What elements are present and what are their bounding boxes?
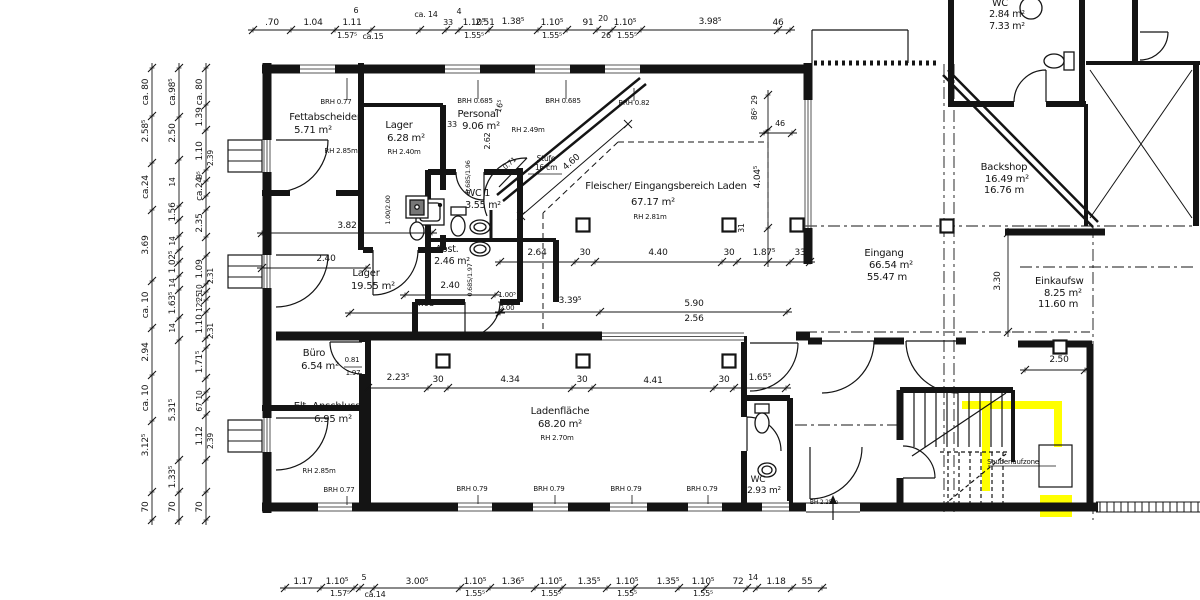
dim-label: 1.10⁵ bbox=[463, 18, 486, 28]
dim-label: 0.685/1.96 bbox=[464, 160, 472, 193]
dim-label: 1.10⁵ bbox=[326, 577, 349, 587]
dim-label: ca.98⁵ bbox=[168, 78, 178, 106]
dim-label: 2.23⁵ bbox=[387, 373, 410, 383]
room-lager-2: Lager bbox=[352, 268, 380, 279]
dim-label: 2.31 bbox=[206, 268, 215, 284]
dim-label: 1.38⁵ bbox=[502, 17, 525, 27]
dim-label: 26 bbox=[601, 31, 611, 40]
dim-label: 1.35⁵ bbox=[657, 577, 680, 587]
dim-label: 1.55⁵ bbox=[617, 31, 637, 40]
dim-label: 1.57⁵ bbox=[330, 589, 350, 598]
dim-label: 2.40 bbox=[316, 254, 336, 264]
dim-label: 4.40 bbox=[648, 248, 668, 258]
dim-label: 1.56 bbox=[168, 202, 178, 222]
dim-label: 0.81 bbox=[345, 356, 360, 364]
dim-label: 2.94 bbox=[141, 342, 151, 362]
dim-label: 2.40 bbox=[440, 281, 460, 291]
dim-label: 7.33 m² bbox=[989, 21, 1025, 32]
dim-label: ca. 14 bbox=[414, 10, 437, 19]
dim-label: 5.31⁵ bbox=[168, 398, 178, 421]
dim-label: ca.14 bbox=[364, 590, 385, 599]
dim-label: 1.10 bbox=[195, 314, 205, 334]
room-eingang: Eingang bbox=[864, 248, 903, 259]
dim-label: 4.34 bbox=[500, 375, 520, 385]
dim-label: BRH 0.685 bbox=[545, 97, 580, 105]
dim-label: 1.10 bbox=[195, 141, 205, 161]
dim-label: 3.00⁵ bbox=[406, 577, 429, 587]
dim-label: 30 bbox=[718, 375, 730, 385]
dim-label: 16⁵ bbox=[494, 99, 506, 114]
dim-label: 91 bbox=[582, 18, 593, 28]
dim-label: 2.00 bbox=[500, 304, 515, 312]
dim-label: ca. 80 bbox=[141, 78, 151, 105]
doors bbox=[276, 32, 1168, 499]
label-sauberlaufzone: Sauberlaufzone bbox=[987, 458, 1039, 466]
dim-label: 1.63⁵ bbox=[168, 291, 178, 314]
dim-label: 1.10⁵ bbox=[541, 18, 564, 28]
dim-label: 1.10⁵ bbox=[692, 577, 715, 587]
dim-label: 2.39 bbox=[206, 150, 215, 166]
dim-label: BRH 0.79 bbox=[456, 485, 487, 493]
room-elt: Elt.-Anschluss bbox=[294, 401, 361, 412]
dim-label: 68.20 m² bbox=[538, 419, 582, 430]
dim-label: 2.31 bbox=[206, 323, 215, 339]
dim-label: 16 cm bbox=[535, 163, 557, 172]
room-wc-klein: WC bbox=[751, 475, 766, 485]
dim-label: 70 bbox=[195, 501, 205, 513]
dim-label: RH 2.81m bbox=[633, 213, 667, 221]
dim-label: 5 bbox=[362, 573, 367, 582]
dim-label: 3.12⁵ bbox=[141, 433, 151, 456]
dim-label: 1.09 bbox=[195, 259, 205, 279]
dim-label: 1.39 bbox=[195, 107, 205, 127]
dim-label: RH 2.85m bbox=[324, 147, 358, 155]
dim-label: 9.06 m² bbox=[462, 121, 500, 132]
room-fleischer: Fleischer/ Eingangsbereich Laden bbox=[585, 181, 747, 192]
dim-label: .70 bbox=[265, 18, 279, 28]
dim-label: 20 bbox=[598, 14, 608, 23]
dim-label: 1.10⁵ bbox=[616, 577, 639, 587]
dim-label: 3.55 m² bbox=[465, 200, 501, 211]
dim-label: 70 bbox=[168, 501, 178, 513]
room-ladenflaeche: Ladenfläche bbox=[531, 406, 590, 417]
dim-label: 30 bbox=[576, 375, 588, 385]
dim-label: 55.47 m bbox=[867, 272, 907, 283]
room-abst: Abst. bbox=[435, 244, 458, 255]
dim-label: ca. 80 bbox=[195, 78, 205, 105]
dim-label: RH 2.40m bbox=[387, 148, 421, 156]
dim-label: 2.46 m² bbox=[434, 256, 470, 267]
dim-label: 5.90 bbox=[684, 299, 704, 309]
dim-label: 2.58⁵ bbox=[141, 119, 151, 142]
dim-label: RH 2.49m bbox=[511, 126, 545, 134]
room-einkaufswagen: Einkaufsw bbox=[1035, 276, 1084, 287]
dim-label: 0.685/1.97 bbox=[466, 263, 474, 296]
dim-label: 6.28 m² bbox=[387, 133, 425, 144]
dim-label: 1.04 bbox=[303, 18, 323, 28]
dim-label: 2.35 bbox=[195, 213, 205, 232]
dim-label: 10 bbox=[195, 390, 204, 400]
dim-label: ca.24 bbox=[141, 175, 151, 199]
dim-label: 1.55⁵ bbox=[464, 31, 484, 40]
dim-label: 1.10⁵ bbox=[540, 577, 563, 587]
floor-plan-canvas: .701.0461.111.57⁵ca.15ca. 142.513341.10⁵… bbox=[0, 0, 1200, 600]
dim-label: 14 bbox=[168, 323, 177, 333]
dim-label: 10 bbox=[195, 284, 204, 294]
dim-label: BRH 0.79 bbox=[610, 485, 641, 493]
dim-label: Stufe bbox=[537, 154, 556, 163]
dim-label: 6.95 m² bbox=[314, 414, 352, 425]
dim-label: 3.98⁵ bbox=[699, 17, 722, 27]
dim-label: 2.62 bbox=[483, 132, 492, 149]
room-personal: Personal bbox=[458, 109, 499, 120]
dim-label: 33 bbox=[447, 120, 457, 129]
dim-label: 67.17 m² bbox=[631, 197, 675, 208]
dim-label: 72 bbox=[732, 577, 743, 587]
dim-label: RH 2.70m bbox=[540, 434, 574, 442]
dim-label: 4.04⁵ bbox=[753, 165, 763, 188]
dim-label: 11.60 m bbox=[1038, 299, 1078, 310]
dim-label: 55 bbox=[801, 577, 812, 587]
dim-label: 1.00⁵ bbox=[498, 291, 516, 299]
dim-label: 3.69 bbox=[141, 235, 151, 255]
floor-plan-svg: .701.0461.111.57⁵ca.15ca. 142.513341.10⁵… bbox=[0, 0, 1200, 600]
dim-label: 14 bbox=[748, 573, 758, 582]
dim-label: 14 bbox=[168, 177, 177, 187]
dim-label: BRH 0.77 bbox=[320, 98, 351, 106]
dim-label: BRH 0.79 bbox=[533, 485, 564, 493]
dim-label: 3.82 bbox=[337, 221, 356, 231]
dim-label: 30 bbox=[432, 375, 444, 385]
dim-label: 1.10⁵ bbox=[464, 577, 487, 587]
dim-label: 2.64 bbox=[527, 248, 547, 258]
dim-label: BRH 0.82 bbox=[618, 99, 649, 107]
dim-label: 1.55⁵ bbox=[541, 589, 561, 598]
dim-label: 1.65⁵ bbox=[749, 373, 772, 383]
dim-label: ca.15 bbox=[362, 32, 383, 41]
dim-label: 4.60 bbox=[561, 152, 582, 172]
dim-label: 1.55⁵ bbox=[693, 589, 713, 598]
dim-label: 5.71 m² bbox=[294, 125, 332, 136]
axis-lines bbox=[795, 64, 1195, 520]
dim-label: 33 bbox=[794, 248, 805, 258]
dim-label: 1.35⁵ bbox=[578, 577, 601, 587]
dim-label: 1.17 bbox=[293, 577, 312, 587]
dim-label: 1.55⁵ bbox=[465, 589, 485, 598]
dim-label: 86⁵ bbox=[750, 108, 759, 120]
room-fettabscheider: Fettabscheider bbox=[289, 112, 362, 123]
dim-label: 3.30 bbox=[993, 271, 1003, 291]
dim-label: 1.18 bbox=[766, 577, 786, 587]
dim-label: 33 bbox=[443, 18, 453, 27]
dim-label: 16.49 m² bbox=[985, 174, 1029, 185]
room-buero: Büro bbox=[303, 348, 325, 359]
dim-label: BRH 0.685 bbox=[457, 97, 492, 105]
dim-label: 29 bbox=[750, 95, 759, 105]
room-backshop: Backshop bbox=[981, 162, 1028, 173]
porch bbox=[812, 30, 936, 63]
dim-label: 3.39⁵ bbox=[559, 296, 582, 306]
dim-label: 31 bbox=[737, 223, 746, 233]
dim-label: 14 bbox=[168, 278, 177, 288]
dim-label: 1.02⁵ bbox=[168, 250, 178, 273]
dim-label: 12⁵ bbox=[195, 300, 204, 312]
dim-label: 4.05 bbox=[415, 299, 434, 309]
dim-label: 1.55⁵ bbox=[617, 589, 637, 598]
dim-label: 1.00/2.00 bbox=[384, 195, 392, 224]
dim-label: 1.57⁵ bbox=[337, 31, 357, 40]
dim-label: 1.87⁵ bbox=[753, 248, 776, 258]
dim-label: 30 bbox=[723, 248, 735, 258]
dim-label: 1.71⁵ bbox=[195, 350, 205, 373]
dim-label: 1.33⁵ bbox=[168, 465, 178, 488]
dim-label: 30 bbox=[579, 248, 591, 258]
room-lager-1: Lager bbox=[385, 120, 413, 131]
dim-label: 2.56 bbox=[684, 314, 704, 324]
dim-label: ca. 10 bbox=[141, 291, 151, 318]
dim-label: ca. 10 bbox=[141, 384, 151, 411]
dim-label: 4.41 bbox=[643, 376, 662, 386]
room-wc-top: WC bbox=[992, 0, 1008, 9]
dim-label: 1.36⁵ bbox=[502, 577, 525, 587]
dim-label: BRH 0.77 bbox=[323, 486, 354, 494]
dim-label: 1.55⁵ bbox=[542, 31, 562, 40]
dim-label: 8.25 m² bbox=[1044, 288, 1082, 299]
dim-label: 46 bbox=[772, 18, 784, 28]
dim-label: 70 bbox=[141, 501, 151, 513]
dim-label: BRH 0.79 bbox=[686, 485, 717, 493]
dim-label: 2.93 m² bbox=[747, 486, 781, 496]
dim-label: 66.54 m² bbox=[869, 260, 913, 271]
dim-label: 6.54 m² bbox=[301, 361, 339, 372]
dim-label: 1.11 bbox=[342, 18, 361, 28]
dim-label: 67 bbox=[195, 402, 204, 412]
dim-label: 1.12 bbox=[195, 426, 205, 445]
dim-label: 19.55 m² bbox=[351, 281, 395, 292]
dim-label: 4 bbox=[457, 7, 462, 16]
dim-label: 2.84 m² bbox=[989, 9, 1025, 20]
dim-label: BH 2.25m bbox=[810, 499, 838, 506]
dim-label: 2.50 bbox=[1049, 355, 1069, 365]
dim-label: 6 bbox=[354, 6, 359, 15]
dim-label: 2.39 bbox=[206, 433, 215, 449]
dim-label: 1.97 bbox=[346, 369, 361, 377]
dim-label: 14 bbox=[168, 236, 177, 246]
dim-label: 1.10⁵ bbox=[614, 18, 637, 28]
dim-label: 16.76 m bbox=[984, 185, 1024, 196]
dim-label: ca.24 bbox=[195, 177, 205, 201]
stairs bbox=[912, 392, 1010, 506]
sauberlaufzone-box bbox=[988, 445, 1072, 487]
dim-label: 2.50 bbox=[168, 123, 178, 143]
dim-label: 46 bbox=[775, 119, 785, 128]
dim-label: RH 2.85m bbox=[302, 467, 336, 475]
